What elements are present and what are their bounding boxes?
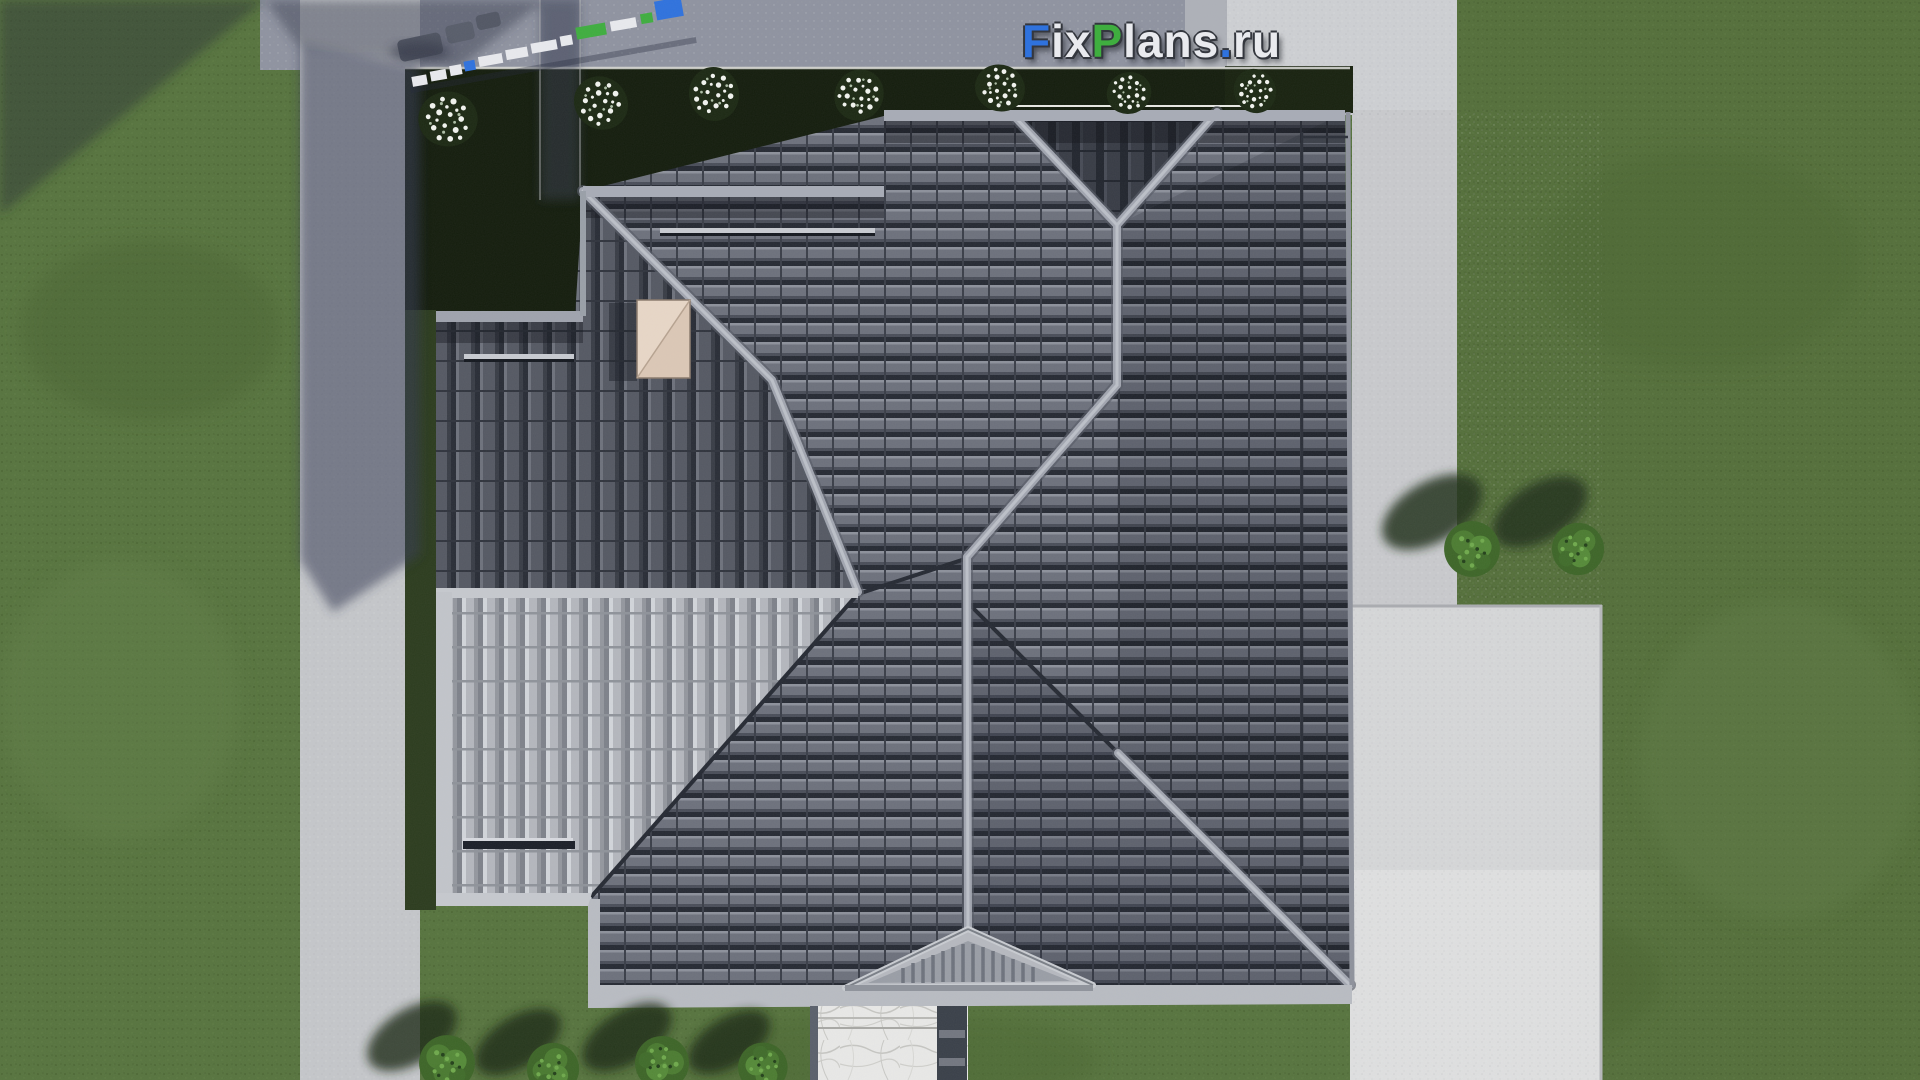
photo-grain-overlay (0, 0, 1920, 1080)
watermark-letter: P (1091, 15, 1123, 67)
watermark-letter: a (1137, 15, 1164, 67)
watermark-letter: . (1219, 15, 1233, 67)
render-canvas: FixPlans.ru (0, 0, 1920, 1080)
watermark-letter: s (1193, 15, 1220, 67)
watermark-letter: n (1164, 15, 1193, 67)
watermark-letter: i (1051, 15, 1065, 67)
site-plan-render (0, 0, 1920, 1080)
watermark-letter: r (1233, 15, 1252, 67)
fixplans-watermark-logo: FixPlans.ru (1022, 14, 1281, 68)
watermark-letter: x (1065, 15, 1092, 67)
watermark-letter: F (1022, 15, 1051, 67)
watermark-letter: u (1252, 15, 1281, 67)
watermark-letter: l (1123, 15, 1137, 67)
